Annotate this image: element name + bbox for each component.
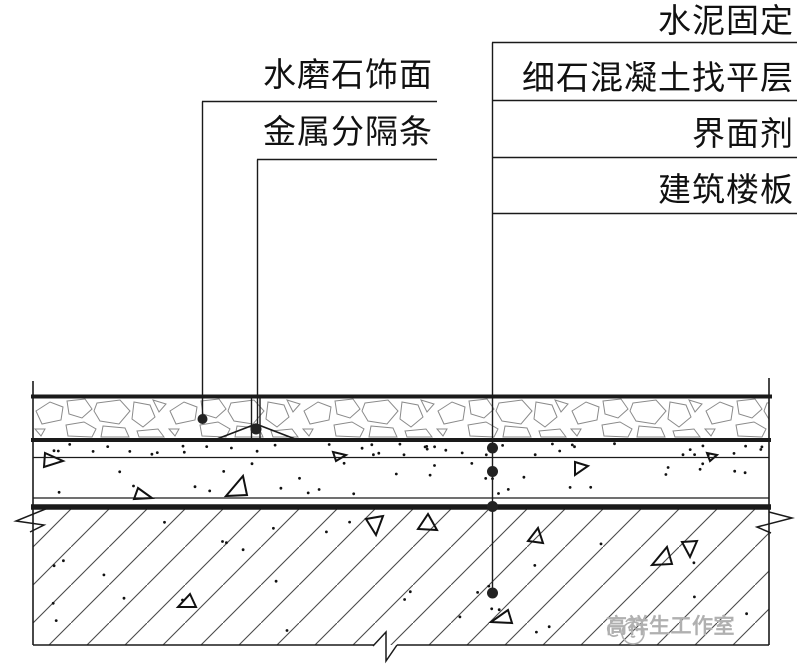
texture-dot	[123, 597, 126, 600]
texture-dot	[52, 602, 55, 605]
texture-dot	[221, 540, 224, 543]
label-floor-slab: 建筑楼板	[658, 172, 794, 210]
texture-dot	[352, 492, 355, 495]
texture-dot	[702, 445, 705, 448]
texture-dot	[163, 521, 166, 524]
texture-dot	[370, 443, 373, 446]
texture-dot	[569, 486, 572, 489]
studio-logo-icon	[606, 610, 654, 650]
texture-dot	[274, 444, 277, 447]
texture-dot	[501, 444, 504, 447]
texture-dot	[523, 476, 526, 479]
texture-dot	[372, 453, 375, 456]
texture-dot	[55, 619, 58, 622]
texture-dot	[53, 449, 56, 452]
texture-dot	[744, 445, 747, 448]
texture-dot	[103, 574, 106, 577]
texture-dot	[470, 462, 473, 465]
texture-dot	[62, 559, 65, 562]
texture-dot	[433, 464, 436, 467]
texture-dot	[484, 477, 487, 480]
texture-dot	[744, 471, 747, 474]
texture-dot	[118, 470, 121, 473]
texture-dot	[444, 449, 447, 452]
texture-dot	[156, 451, 159, 454]
texture-dot	[208, 490, 211, 493]
texture-dot	[693, 561, 696, 564]
aggregate-triangle-icon	[44, 453, 63, 467]
texture-dot	[280, 487, 283, 490]
section-drawing-canvas	[0, 0, 799, 667]
texture-dot	[307, 492, 310, 495]
texture-dot	[106, 445, 109, 448]
texture-dot	[429, 474, 432, 477]
label-leveling-layer: 细石混凝土找平层	[522, 60, 794, 98]
texture-dot	[425, 445, 428, 448]
texture-dot	[58, 491, 61, 494]
watermark: 高祥生工作室	[606, 610, 735, 640]
texture-dot	[399, 443, 402, 446]
label-terrazzo-finish: 水磨石饰面	[263, 57, 433, 95]
texture-dot	[701, 462, 704, 465]
texture-dot	[745, 612, 748, 615]
texture-dot	[613, 442, 616, 445]
texture-dot	[693, 453, 696, 456]
texture-dot	[298, 477, 301, 480]
texture-dot	[222, 470, 225, 473]
texture-dot	[343, 462, 346, 465]
texture-dot	[759, 448, 762, 451]
texture-dot	[230, 447, 233, 450]
texture-dot	[275, 580, 278, 583]
texture-dot	[403, 453, 406, 456]
texture-dot	[573, 445, 576, 448]
texture-dot	[426, 448, 429, 451]
texture-dot	[551, 443, 554, 446]
texture-dot	[318, 488, 321, 491]
texture-dot	[225, 541, 228, 544]
texture-dot	[132, 485, 135, 488]
texture-dot	[242, 548, 245, 551]
texture-dot	[571, 444, 574, 447]
texture-dot	[487, 585, 490, 588]
texture-dot	[377, 452, 380, 455]
texture-dot	[476, 591, 479, 594]
texture-dot	[92, 450, 95, 453]
texture-dot	[53, 564, 56, 567]
texture-dot	[205, 445, 208, 448]
construction-detail-drawing: 水磨石饰面 金属分隔条 水泥固定 细石混凝土找平层 界面剂 建筑楼板 高祥生工作…	[0, 0, 799, 667]
texture-dot	[68, 443, 71, 446]
texture-dot	[682, 453, 685, 456]
texture-dot	[534, 453, 537, 456]
texture-dot	[409, 590, 412, 593]
aggregate-triangle-icon	[575, 462, 588, 475]
texture-dot	[498, 608, 501, 611]
leader-dot-divider	[251, 424, 262, 435]
leader-dot-terrazzo	[198, 414, 208, 424]
texture-dot	[497, 492, 500, 495]
label-cement-fixing: 水泥固定	[658, 3, 794, 41]
texture-dot	[693, 596, 696, 599]
texture-dot	[733, 452, 736, 455]
texture-dot	[151, 453, 154, 456]
texture-dot	[461, 452, 464, 455]
aggregate-triangle-icon	[226, 476, 247, 496]
label-interface-agent: 界面剂	[692, 116, 794, 154]
texture-dot	[433, 445, 436, 448]
texture-dot	[600, 543, 603, 546]
texture-dot	[533, 564, 536, 567]
texture-dot	[699, 468, 702, 471]
texture-dot	[183, 451, 186, 454]
texture-dot	[665, 473, 668, 476]
texture-dot	[194, 485, 197, 488]
texture-dot	[733, 470, 736, 473]
texture-dot	[558, 450, 561, 453]
texture-dot	[667, 466, 670, 469]
leader-dot-slab	[487, 588, 498, 599]
texture-dot	[548, 625, 551, 628]
texture-dot	[328, 443, 331, 446]
terrazzo-layer	[33, 398, 769, 439]
leader-dot-interface	[487, 501, 498, 512]
aggregate-triangle-icon	[134, 488, 152, 499]
texture-dot	[490, 607, 493, 610]
texture-dot	[256, 450, 259, 453]
texture-dot	[689, 448, 692, 451]
texture-dot	[395, 473, 398, 476]
texture-dot	[272, 527, 275, 530]
texture-dot	[361, 447, 364, 450]
texture-dot	[459, 616, 462, 619]
label-divider-strip: 金属分隔条	[263, 114, 433, 152]
aggregate-triangle-icon	[333, 452, 346, 461]
texture-dot	[286, 629, 289, 632]
texture-dot	[251, 462, 254, 465]
texture-dot	[128, 450, 131, 453]
texture-dot	[348, 521, 351, 524]
texture-dot	[535, 631, 538, 634]
leader-dot-cement	[487, 443, 498, 454]
texture-dot	[485, 453, 488, 456]
texture-dot	[182, 445, 185, 448]
leader-dot-leveling	[487, 466, 498, 477]
texture-dot	[589, 486, 592, 489]
texture-dot	[57, 450, 60, 453]
texture-dot	[325, 531, 328, 534]
texture-dot	[507, 488, 510, 491]
texture-dot	[761, 446, 764, 449]
texture-dot	[403, 598, 406, 601]
